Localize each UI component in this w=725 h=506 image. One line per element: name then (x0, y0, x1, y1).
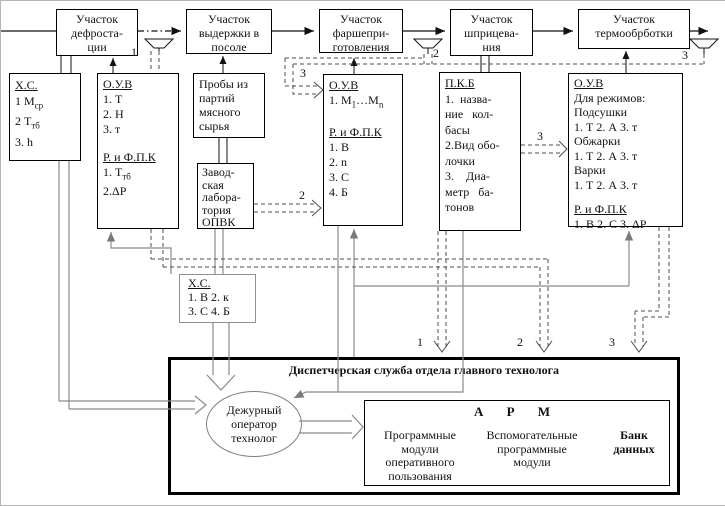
box-title: Х.С. (15, 77, 75, 93)
box-title: Р. и Ф.П.К (329, 125, 397, 140)
funnel-label-2: 2 (433, 47, 439, 59)
flow-diagram: Участок дефроста- ции Участок выдержки в… (0, 0, 725, 506)
box-ouv-mincing: О.У.В 1. М1…Мn Р. и Ф.П.К 1. В 2. n 3. С… (323, 74, 403, 226)
box-ouv-defrost: О.У.В 1. Т 2. Н 3. т Р. и Ф.П.К 1. Ттб 2… (97, 73, 179, 229)
box-chem-composition-2: Х.С. 1. В 2. к 3. С 4. Б (179, 274, 256, 323)
box-pkb-design: П.К.Б 1. назва- ние кол- басы 2.Вид обо-… (439, 72, 521, 231)
box-title: О.У.В (574, 76, 677, 91)
route-label-drop-1: 1 (417, 336, 423, 348)
box-chem-composition-1: Х.С. 1 Мср 2 Ттб 3. h (9, 73, 81, 161)
operator-ellipse: Дежурный оператор технолог (206, 391, 302, 457)
route-label-drop-2: 2 (517, 336, 523, 348)
arm-module-auxiliary: Вспомогательные программные модули (469, 429, 595, 470)
box-meat-samples: Пробы из партий мясного сырья (193, 73, 265, 138)
arm-module-operational: Программные модули оперативного пользова… (369, 429, 471, 483)
box-title: О.У.В (329, 78, 397, 93)
funnel-label-1: 1 (131, 46, 137, 58)
horn-icon-1 (145, 39, 173, 54)
unit-box-mincing: Участок фаршепри- готовления (319, 9, 403, 53)
box-title: П.К.Б (445, 76, 515, 92)
box-ouv-thermal: О.У.В Для режимов: Подсушки 1. Т 2. А 3.… (568, 73, 683, 227)
unit-box-stuffing: Участок шприцева- ния (450, 9, 533, 56)
funnel-label-3: 3 (682, 49, 688, 61)
dispatcher-service-box: Диспетчерская служба отдела главного тех… (168, 357, 680, 495)
unit-box-defrost: Участок дефроста- ции (56, 9, 138, 56)
route-label-drop-3: 3 (609, 336, 615, 348)
unit-box-brining: Участок выдержки в посоле (186, 9, 272, 54)
route-label-pkb-out: 3 (537, 130, 543, 142)
unit-box-thermal: Участок термообрботки (578, 9, 690, 49)
box-title: Х.С. (188, 276, 247, 290)
box-title: Р. и Ф.П.К (574, 202, 677, 217)
dispatcher-title: Диспетчерская служба отдела главного тех… (171, 363, 677, 378)
box-title: Р. и Ф.П.К (103, 150, 173, 165)
route-label-ouv2-in: 3 (300, 67, 306, 79)
arm-box: А Р М Программные модули оперативного по… (364, 400, 670, 486)
route-label-lab-out: 2 (299, 189, 305, 201)
arm-data-bank: Банк данных (601, 429, 667, 456)
box-title: О.У.В (103, 77, 173, 92)
horn-icon-3 (690, 39, 718, 54)
box-factory-lab: Завод- ская лабора- тория ОПВК (197, 163, 254, 229)
arm-title: А Р М (365, 404, 669, 420)
